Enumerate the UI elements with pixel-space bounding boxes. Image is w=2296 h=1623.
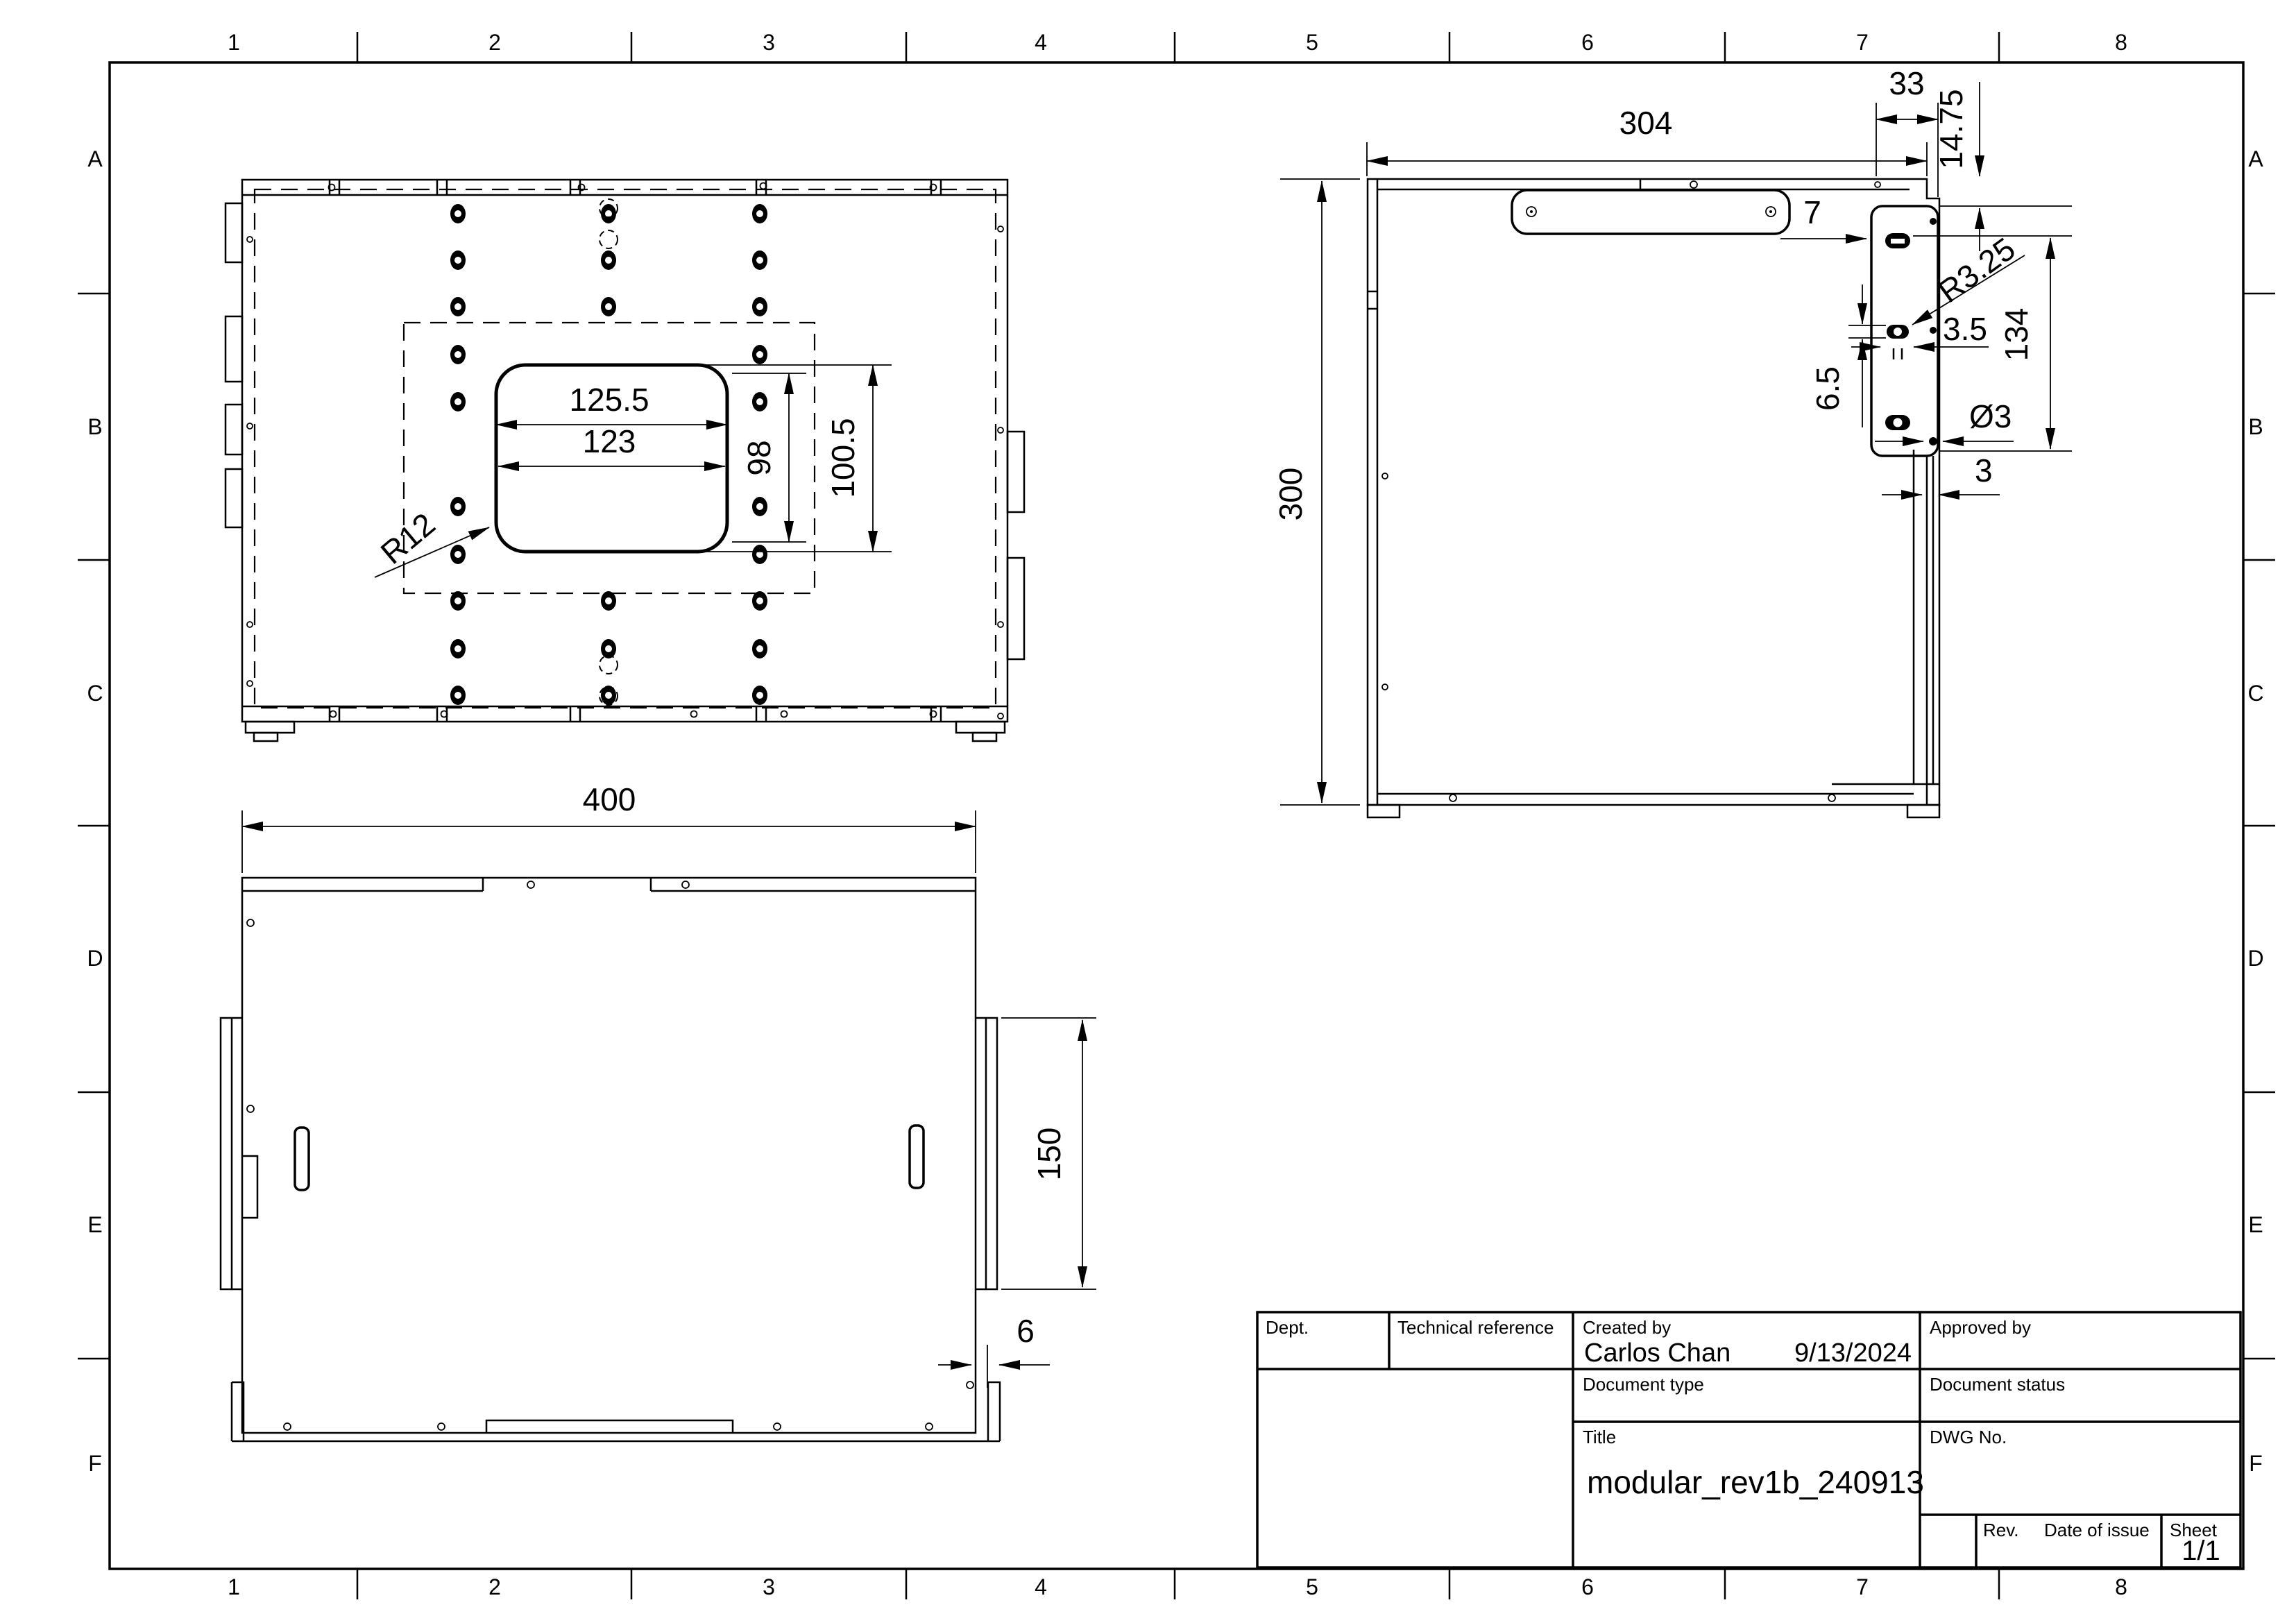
row-label: F (2249, 1451, 2263, 1476)
created-by-value: Carlos Chan (1584, 1339, 1730, 1368)
tech-ref-label: Technical reference (1397, 1317, 1554, 1338)
row-label: B (87, 414, 102, 439)
col-label: 7 (1856, 30, 1869, 55)
interior-slot (295, 1128, 309, 1190)
hinge-bracket (1871, 206, 1938, 805)
frame-col-labels-bottom: 1 2 3 4 5 6 7 8 (228, 1574, 2127, 1599)
sheet-frame: 1 2 3 4 5 6 7 8 1 2 3 4 5 6 7 8 A B C D … (78, 30, 2275, 1599)
col-label: 1 (228, 1574, 240, 1599)
front-view: 400 150 6 (221, 781, 1096, 1441)
dim-wall-3: 3 (1975, 452, 1993, 488)
col-label: 8 (2115, 1574, 2127, 1599)
dim-offset-1475: 14.75 (1933, 89, 1969, 169)
title-label: Title (1583, 1427, 1616, 1447)
dim-length-134: 134 (1998, 308, 2034, 362)
row-label: D (87, 946, 103, 971)
dim-offset-35: 3.5 (1943, 311, 1987, 347)
dim-front-width: 400 (583, 781, 636, 817)
dim-height-inner: 98 (741, 440, 777, 475)
sheet-number-value: 1/1 (2182, 1536, 2220, 1566)
col-label: 3 (763, 1574, 775, 1599)
row-label: C (87, 681, 103, 706)
top-slot (1512, 190, 1789, 234)
cad-drawing: 1 2 3 4 5 6 7 8 1 2 3 4 5 6 7 8 A B C D … (0, 0, 2296, 1623)
dim-width-outer: 125.5 (569, 382, 649, 418)
drawing-title-value: modular_rev1b_240913 (1587, 1464, 1924, 1500)
dim-height-outer: 100.5 (825, 418, 861, 498)
frame-col-labels-top: 1 2 3 4 5 6 7 8 (228, 30, 2127, 55)
row-label: C (2247, 681, 2263, 706)
dim-hole-dia: Ø3 (1969, 398, 2012, 434)
col-label: 7 (1856, 1574, 1869, 1599)
dwg-no-label: DWG No. (1930, 1427, 2007, 1447)
col-label: 8 (2115, 30, 2127, 55)
row-label: F (88, 1451, 102, 1476)
dim-tab-height: 150 (1031, 1128, 1067, 1181)
col-label: 5 (1306, 30, 1318, 55)
col-label: 3 (763, 30, 775, 55)
date-of-issue-label: Date of issue (2044, 1520, 2150, 1540)
row-label: D (2247, 946, 2263, 971)
created-by-label: Created by (1583, 1317, 1671, 1338)
col-label: 5 (1306, 1574, 1318, 1599)
dim-corner-radius: R12 (374, 506, 442, 571)
col-label: 6 (1581, 30, 1594, 55)
col-label: 4 (1035, 1574, 1047, 1599)
doc-type-label: Document type (1583, 1374, 1704, 1395)
title-block: Dept. Technical reference Created by App… (1257, 1312, 2240, 1567)
rev-label: Rev. (1983, 1520, 2019, 1540)
dim-slot-7: 7 (1803, 194, 1821, 230)
interior-slot (910, 1125, 924, 1188)
row-label: E (87, 1212, 102, 1237)
created-date-value: 9/13/2024 (1794, 1339, 1912, 1368)
col-label: 6 (1581, 1574, 1594, 1599)
dept-label: Dept. (1266, 1317, 1309, 1338)
col-label: 2 (488, 1574, 501, 1599)
col-label: 4 (1035, 30, 1047, 55)
front-side-tabs (221, 1018, 997, 1289)
side-view-feet (1368, 805, 1939, 817)
row-label: A (87, 146, 103, 171)
side-view-holes (1382, 181, 1880, 801)
edge-holes (247, 226, 1003, 719)
side-view: 300 304 33 14.75 7 R3.25 3.5 6.5 134 (1273, 65, 2072, 817)
doc-status-label: Document status (1930, 1374, 2065, 1395)
col-label: 1 (228, 30, 240, 55)
dim-side-height: 300 (1273, 468, 1309, 521)
frame-ticks (78, 32, 2275, 1599)
front-holes (247, 881, 973, 1430)
front-view-dimensions: 400 150 6 (242, 781, 1096, 1388)
dim-width-inner: 123 (583, 423, 636, 459)
dim-radius-325: R3.25 (1932, 230, 2022, 309)
top-view: 125.5 123 98 100.5 R12 (226, 180, 1024, 741)
dim-wall-6: 6 (1017, 1313, 1035, 1349)
corner-feet (246, 722, 1005, 741)
dim-offset-33: 33 (1889, 65, 1924, 101)
dim-side-width: 304 (1619, 105, 1673, 141)
drawing-sheet: 1 2 3 4 5 6 7 8 1 2 3 4 5 6 7 8 A B C D … (0, 0, 2296, 1623)
row-label: E (2248, 1212, 2263, 1237)
row-label: A (2248, 146, 2263, 171)
approved-by-label: Approved by (1930, 1317, 2031, 1338)
col-label: 2 (488, 30, 501, 55)
dim-gap-65: 6.5 (1810, 366, 1846, 411)
row-label: B (2248, 414, 2263, 439)
